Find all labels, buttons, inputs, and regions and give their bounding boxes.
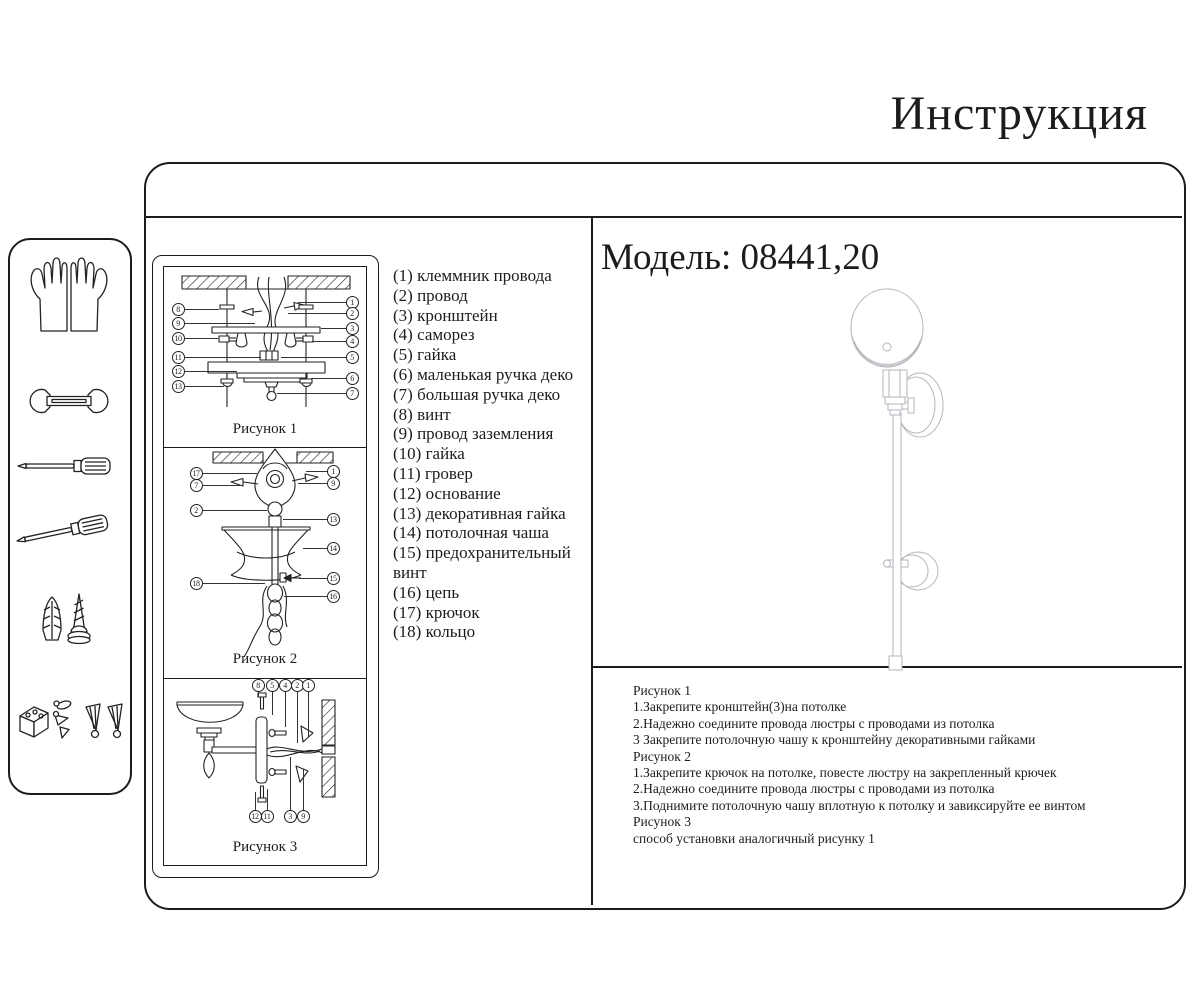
callout-9: 9 bbox=[172, 317, 185, 330]
gloves-icon bbox=[31, 258, 107, 331]
tools-icons bbox=[8, 238, 130, 791]
part-item: (3) кронштейн bbox=[393, 306, 591, 326]
callout-1: 1 bbox=[327, 465, 340, 478]
cross-screwdriver-icon bbox=[15, 514, 108, 549]
callout-2: 2 bbox=[190, 504, 203, 517]
callout-9: 9 bbox=[297, 810, 310, 823]
instruction-line: Рисунок 1 bbox=[633, 683, 1173, 699]
callout-7: 7 bbox=[346, 387, 359, 400]
part-item: (14) потолочная чаша bbox=[393, 523, 591, 543]
dowel-screw-icon bbox=[43, 594, 90, 644]
callout-leader bbox=[196, 583, 265, 584]
callout-11: 11 bbox=[172, 351, 185, 364]
callout-15: 15 bbox=[327, 572, 340, 585]
part-item: (7) большая ручка деко bbox=[393, 385, 591, 405]
parts-list: (1) клеммник провода(2) провод(3) кроншт… bbox=[393, 266, 591, 642]
instruction-line: способ установки аналогичный рисунку 1 bbox=[633, 831, 1173, 847]
instruction-line: 3 Закрепите потолочную чашу к кронштейну… bbox=[633, 732, 1173, 748]
callout-leader bbox=[178, 371, 237, 372]
figure-3-drawing bbox=[163, 678, 367, 866]
callout-13: 13 bbox=[172, 380, 185, 393]
part-item: (10) гайка bbox=[393, 444, 591, 464]
callout-7: 7 bbox=[190, 479, 203, 492]
wall-lamp-drawing bbox=[815, 285, 985, 675]
instruction-line: 2.Надежно соедините провода люстры с про… bbox=[633, 781, 1173, 797]
model-title: Модель: 08441,20 bbox=[601, 236, 879, 279]
mounting-hardware-icon bbox=[20, 700, 122, 738]
callout-13: 13 bbox=[327, 513, 340, 526]
callout-leader bbox=[277, 393, 352, 394]
part-item: (9) провод заземления bbox=[393, 424, 591, 444]
instruction-line: 2.Надежно соедините провода люстры с про… bbox=[633, 716, 1173, 732]
figure-2-caption: Рисунок 2 bbox=[163, 651, 367, 668]
figure-3-caption: Рисунок 3 bbox=[163, 839, 367, 856]
callout-1: 1 bbox=[302, 679, 315, 692]
part-item: (15) предохранительный винт bbox=[393, 543, 591, 583]
part-item: (16) цепь bbox=[393, 583, 591, 603]
page-title: Инструкция bbox=[891, 86, 1148, 141]
callout-leader bbox=[196, 485, 240, 486]
callout-leader bbox=[196, 510, 267, 511]
callout-18: 18 bbox=[190, 577, 203, 590]
callout-leader bbox=[288, 313, 352, 314]
part-item: (4) саморез bbox=[393, 325, 591, 345]
instructions: Рисунок 11.Закрепите кронштейн(3)на пото… bbox=[633, 683, 1173, 847]
part-item: (11) гровер bbox=[393, 464, 591, 484]
header-divider bbox=[144, 216, 1182, 218]
instruction-line: Рисунок 2 bbox=[633, 749, 1173, 765]
part-item: (12) основание bbox=[393, 484, 591, 504]
callout-leader bbox=[281, 357, 352, 358]
callout-14: 14 bbox=[327, 542, 340, 555]
instruction-sheet: Инструкция bbox=[0, 0, 1200, 999]
callout-leader bbox=[308, 685, 309, 737]
flat-screwdriver-icon bbox=[18, 458, 110, 474]
figure-1-caption: Рисунок 1 bbox=[163, 421, 367, 438]
instruction-line: Рисунок 3 bbox=[633, 814, 1173, 830]
callout-leader bbox=[297, 685, 298, 743]
part-item: (17) крючок bbox=[393, 603, 591, 623]
callout-12: 12 bbox=[249, 810, 262, 823]
callout-leader bbox=[178, 386, 224, 387]
callout-9: 9 bbox=[327, 477, 340, 490]
part-item: (5) гайка bbox=[393, 345, 591, 365]
callout-leader bbox=[283, 519, 333, 520]
callout-16: 16 bbox=[327, 590, 340, 603]
part-item: (13) декоративная гайка bbox=[393, 504, 591, 524]
wrench-icon bbox=[30, 390, 108, 413]
callout-3: 3 bbox=[284, 810, 297, 823]
callout-leader bbox=[298, 302, 352, 303]
callout-11: 11 bbox=[261, 810, 274, 823]
instruction-line: 1.Закрепите кронштейн(3)на потолке bbox=[633, 699, 1173, 715]
callout-8: 8 bbox=[252, 679, 265, 692]
callout-17: 17 bbox=[190, 467, 203, 480]
callout-2: 2 bbox=[346, 307, 359, 320]
part-item: (8) винт bbox=[393, 405, 591, 425]
part-item: (1) клеммник провода bbox=[393, 266, 591, 286]
callout-leader bbox=[303, 769, 304, 816]
callout-6: 6 bbox=[346, 372, 359, 385]
callout-3: 3 bbox=[346, 322, 359, 335]
callout-leader bbox=[178, 357, 261, 358]
column-divider bbox=[591, 217, 593, 905]
callout-5: 5 bbox=[266, 679, 279, 692]
callout-leader bbox=[284, 596, 333, 597]
callout-8: 8 bbox=[172, 303, 185, 316]
callout-leader bbox=[290, 757, 291, 816]
callout-4: 4 bbox=[346, 335, 359, 348]
part-item: (2) провод bbox=[393, 286, 591, 306]
part-item: (18) кольцо bbox=[393, 622, 591, 642]
callout-10: 10 bbox=[172, 332, 185, 345]
callout-leader bbox=[178, 323, 255, 324]
callout-12: 12 bbox=[172, 365, 185, 378]
callout-leader bbox=[196, 473, 257, 474]
instruction-line: 1.Закрепите крючок на потолке, повесте л… bbox=[633, 765, 1173, 781]
part-item: (6) маленькая ручка деко bbox=[393, 365, 591, 385]
callout-4: 4 bbox=[279, 679, 292, 692]
callout-5: 5 bbox=[346, 351, 359, 364]
instruction-line: 3.Поднимите потолочную чашу вплотную к п… bbox=[633, 798, 1173, 814]
